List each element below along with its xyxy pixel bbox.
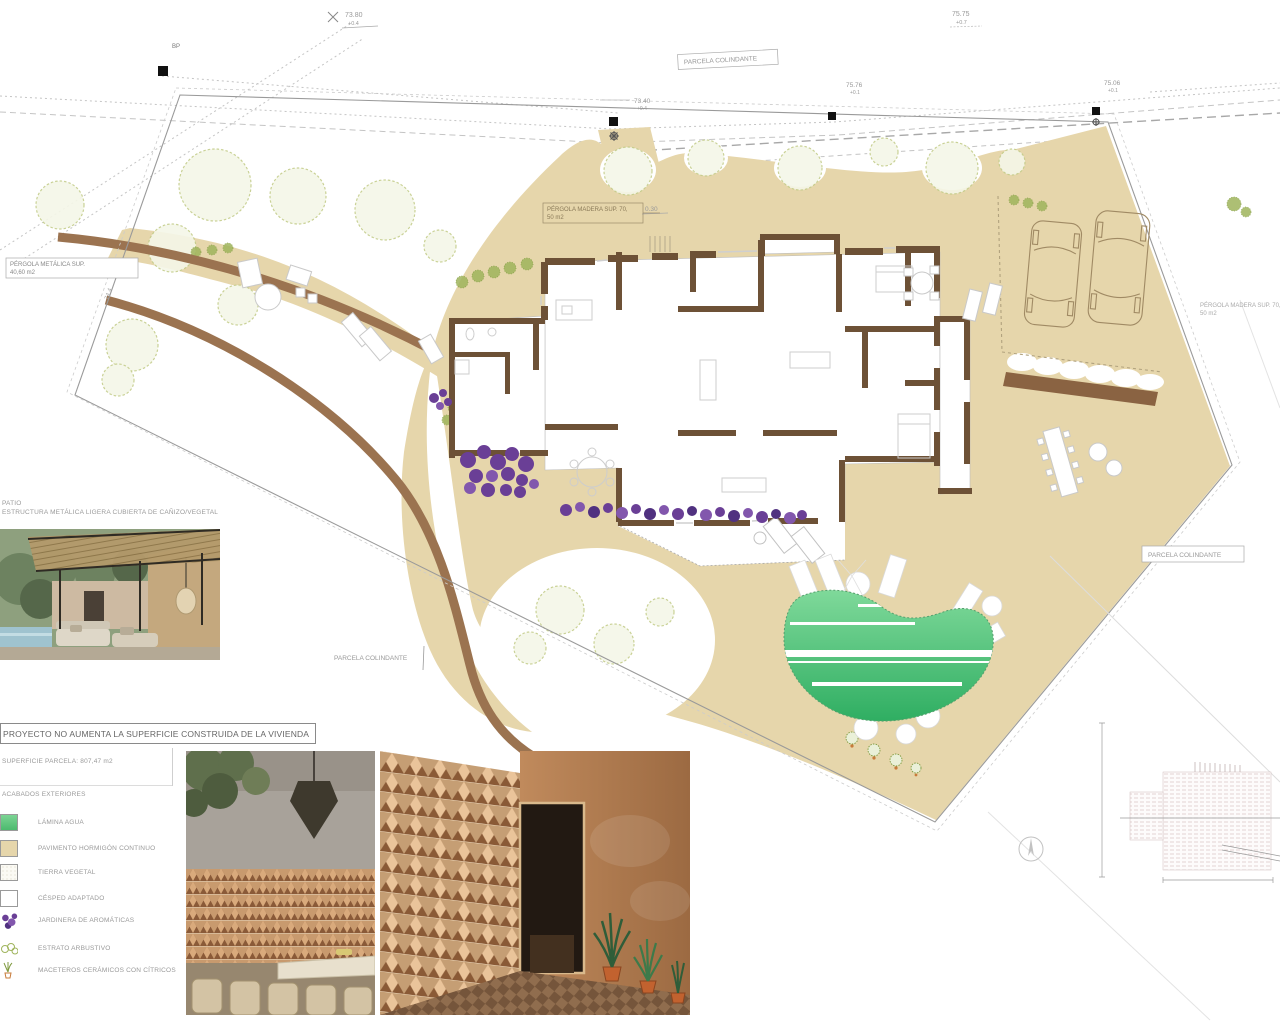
svg-text:+0.7: +0.7	[956, 20, 967, 26]
svg-text:PÉRGOLA MADERA SUP. 70,: PÉRGOLA MADERA SUP. 70,	[1200, 302, 1280, 309]
svg-text:50 m2: 50 m2	[1200, 311, 1217, 317]
measure-75-76: 75.76 +0.1	[846, 82, 863, 96]
swatch-planter	[0, 912, 18, 929]
detail-elevation	[1099, 723, 1280, 883]
parcela-colindante-top: PARCELA COLINDANTE	[678, 49, 779, 69]
site-plan-canvas: BP 73.80 +0.4 75.75 +0.7 73.40 +0.4 75.7…	[0, 0, 1280, 1024]
svg-text:+0.4: +0.4	[637, 106, 647, 112]
photo-patio-lattice	[186, 751, 375, 1015]
svg-text:PARCELA COLINDANTE: PARCELA COLINDANTE	[334, 655, 408, 662]
swatch-pots	[0, 962, 18, 979]
pergola-metalica-label: PÉRGOLA METÁLICA SUP. 40,60 m2	[6, 258, 138, 278]
swatch-shrub	[0, 940, 18, 957]
photo-pergola-caption-line2: ESTRUCTURA METÁLICA LIGERA CUBIERTA DE C…	[2, 508, 218, 517]
svg-text:+0.1: +0.1	[1108, 88, 1118, 94]
legend-section-title: ACABADOS EXTERIORES	[2, 791, 86, 798]
svg-text:75.76: 75.76	[846, 82, 863, 89]
parcela-colindante-right: PARCELA COLINDANTE	[1142, 546, 1244, 562]
swatch-soil	[0, 864, 18, 881]
svg-text:+0.1: +0.1	[850, 90, 860, 96]
legend-divider-vertical	[172, 748, 173, 786]
measure-75-75: 75.75 +0.7	[950, 11, 982, 27]
svg-text:73.40: 73.40	[634, 98, 651, 105]
parcela-colindante-left: PARCELA COLINDANTE	[334, 646, 424, 670]
svg-text:75.06: 75.06	[1104, 80, 1121, 87]
svg-text:PARCELA COLINDANTE: PARCELA COLINDANTE	[1148, 552, 1222, 559]
swatch-grass	[0, 890, 18, 907]
project-note-text: PROYECTO NO AUMENTA LA SUPERFICIE CONSTR…	[3, 729, 309, 739]
project-note-box: PROYECTO NO AUMENTA LA SUPERFICIE CONSTR…	[0, 723, 316, 744]
swatch-water	[0, 814, 18, 831]
photo-pergola-caption-line1: PATIO	[2, 499, 218, 508]
svg-text:PÉRGOLA METÁLICA SUP.: PÉRGOLA METÁLICA SUP.	[10, 261, 85, 268]
svg-text:50 m2: 50 m2	[547, 215, 564, 221]
photo-pergola	[0, 529, 220, 660]
photo-pergola-caption: PATIO ESTRUCTURA METÁLICA LIGERA CUBIERT…	[2, 499, 218, 517]
svg-text:0.30: 0.30	[645, 206, 658, 213]
legend-superficie: SUPERFICIE PARCELA: 807,47 m2	[2, 758, 113, 765]
measure-73-40: 73.40 +0.4	[600, 98, 651, 112]
survey-markers: BP	[158, 12, 1100, 141]
legend-panel: SUPERFICIE PARCELA: 807,47 m2 ACABADOS E…	[0, 748, 180, 1024]
swatch-paving	[0, 840, 18, 857]
photo-pergola-deck	[0, 647, 220, 660]
north-arrow	[1019, 837, 1043, 861]
svg-text:73.80: 73.80	[345, 12, 363, 19]
photo-corridor	[380, 751, 690, 1015]
svg-text:PÉRGOLA MADERA SUP. 70,: PÉRGOLA MADERA SUP. 70,	[547, 206, 628, 213]
bp-label: BP	[172, 44, 180, 50]
pergola-madera-right-label: PÉRGOLA MADERA SUP. 70, 50 m2	[1200, 302, 1280, 317]
svg-text:+0.4: +0.4	[348, 21, 359, 27]
svg-text:40,60 m2: 40,60 m2	[10, 270, 36, 276]
photo-pergola-lamp	[176, 588, 196, 614]
measure-75-06: 75.06 +0.1	[1104, 80, 1121, 94]
svg-text:75.75: 75.75	[952, 11, 970, 18]
measure-73-80: 73.80 +0.4	[342, 12, 378, 28]
legend-divider-horizontal	[0, 785, 172, 786]
